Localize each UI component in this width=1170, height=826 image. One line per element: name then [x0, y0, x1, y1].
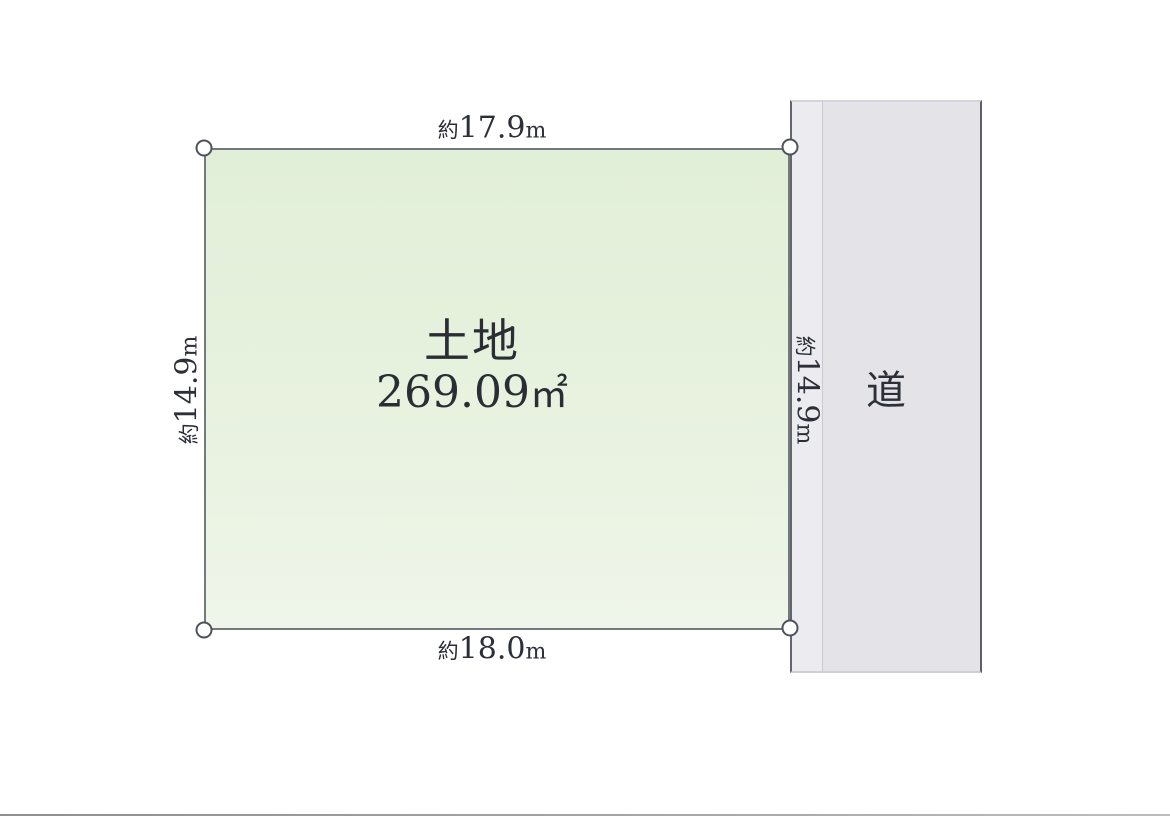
dimension-bottom: 約18.0m — [438, 632, 547, 667]
dimension-left-value: 14.9 — [170, 357, 205, 424]
dimension-top-prefix: 約 — [438, 119, 459, 143]
parcel-area-unit: ㎡ — [530, 372, 568, 416]
dimension-bottom-value: 18.0 — [459, 632, 526, 667]
dimension-bottom-prefix: 約 — [438, 640, 459, 664]
dimension-right-value: 14.9 — [790, 357, 825, 424]
dimension-right-unit: m — [792, 423, 817, 444]
parcel-area-value: 269.09 — [376, 367, 530, 418]
page-edge-line — [0, 814, 1170, 816]
dimension-top-unit: m — [525, 119, 546, 144]
land-plot-diagram: 道 土地 269.09㎡ 約17.9m 約18.0m 約14.9m 約14.9m — [0, 0, 1170, 826]
dimension-left: 約14.9m — [170, 336, 205, 445]
parcel-title: 土地 — [376, 315, 568, 368]
corner-marker-bottom-right — [782, 620, 799, 637]
dimension-top: 約17.9m — [438, 111, 547, 146]
corner-marker-top-left — [196, 140, 213, 157]
dimension-left-prefix: 約 — [178, 423, 202, 444]
parcel-text-block: 土地 269.09㎡ — [376, 315, 568, 418]
dimension-left-unit: m — [178, 336, 203, 357]
dimension-right: 約14.9m — [790, 336, 825, 445]
dimension-bottom-unit: m — [525, 640, 546, 665]
parcel-area: 269.09㎡ — [376, 368, 568, 419]
corner-marker-top-right — [782, 139, 799, 156]
dimension-right-prefix: 約 — [793, 336, 817, 357]
dimension-top-value: 17.9 — [459, 111, 526, 146]
land-parcel: 土地 269.09㎡ — [204, 148, 790, 630]
corner-marker-bottom-left — [196, 622, 213, 639]
